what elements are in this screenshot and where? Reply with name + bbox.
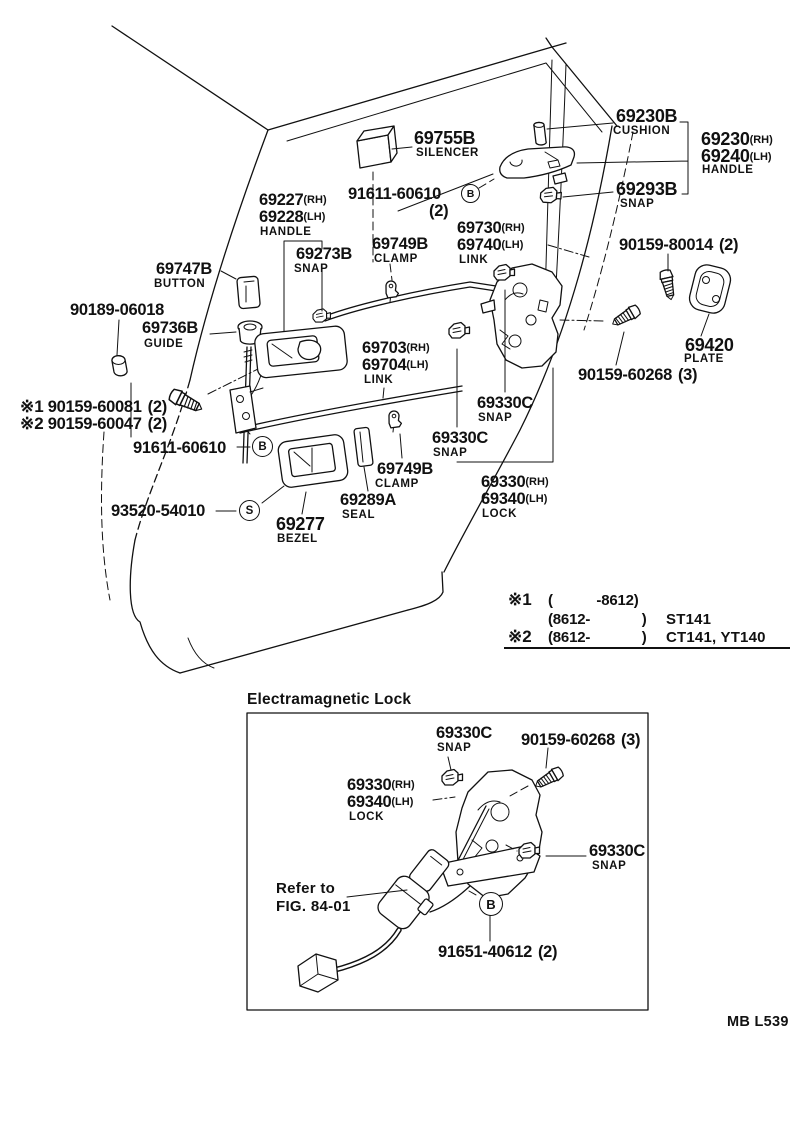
label-clamp-lower-num: 69749B	[377, 461, 433, 479]
label-inset-snap-top-num: 69330C	[436, 725, 492, 743]
label-snap-lower-name: SNAP	[433, 448, 467, 460]
label-outer-snap-num: 69293B	[616, 180, 677, 200]
label-inset-screw-91651: 91651-40612(2)	[438, 944, 557, 962]
parts-diagram-page: 69755B SILENCER 69230B CUSHION 69230(RH)…	[0, 0, 800, 1142]
label-inset-snap-right-name: SNAP	[592, 861, 626, 873]
label-button-name: BUTTON	[154, 279, 205, 291]
grommet-part	[112, 356, 127, 376]
label-snap-lower-num: 69330C	[432, 430, 488, 448]
latch-bracket-part	[230, 386, 263, 433]
applicability-row-1: ※1( -8612)	[504, 590, 792, 609]
label-link-outer-name: LINK	[459, 255, 488, 267]
label-inset-lock-name: LOCK	[349, 812, 384, 824]
label-inner-snap-name: SNAP	[294, 264, 328, 276]
inner-handle-part	[254, 325, 348, 378]
inset-title: Electramagnetic Lock	[247, 691, 411, 709]
label-inner-snap-num: 69273B	[296, 246, 352, 264]
actuator-part	[374, 843, 460, 935]
label-inset-snap-right-num: 69330C	[589, 843, 645, 861]
label-screw-91611-upper-num: 91611-60610	[348, 186, 441, 204]
plate-part	[687, 262, 733, 315]
label-inner-handle-lh: 69228(LH)	[259, 209, 325, 227]
bezel-part	[277, 434, 349, 489]
label-clamp-lower-name: CLAMP	[375, 479, 419, 491]
label-refer-line2: FIG. 84-01	[276, 898, 351, 915]
label-cushion-name: CUSHION	[613, 126, 670, 138]
label-clamp-upper-name: CLAMP	[374, 254, 418, 266]
label-screw-91611-upper-qty: (2)	[429, 203, 448, 221]
label-guide-name: GUIDE	[144, 339, 183, 351]
parts-artwork	[112, 122, 733, 488]
cushion-part	[534, 122, 546, 144]
label-refer-line1: Refer to	[276, 880, 335, 897]
inset-artwork	[247, 713, 648, 1010]
connector-part	[298, 954, 338, 992]
label-screw-60268-main: 90159-60268(3)	[578, 367, 697, 385]
label-screw-93520: 93520-54010	[111, 503, 205, 521]
label-seal-name: SEAL	[342, 510, 375, 522]
symbol-s: S	[239, 500, 260, 521]
diagram-line-art	[0, 0, 800, 1142]
label-snap-upper-name: SNAP	[478, 413, 512, 425]
symbol-b-mid: B	[252, 436, 273, 457]
label-bezel-name: BEZEL	[277, 534, 318, 546]
figure-code: MB L539	[727, 1014, 789, 1030]
silencer-part	[357, 126, 397, 168]
label-link-outer-lh: 69740(LH)	[457, 237, 523, 255]
label-outer-snap-name: SNAP	[620, 199, 654, 211]
applicability-underline	[504, 647, 790, 649]
symbol-b-upper: B	[461, 184, 480, 203]
label-cushion-num: 69230B	[616, 107, 677, 127]
lock-part	[481, 264, 562, 368]
label-silencer-num: 69755B	[414, 129, 475, 149]
label-seal-num: 69289A	[340, 492, 396, 510]
label-screw-80014: 90159-80014(2)	[619, 237, 738, 255]
label-screw-ref2: ※290159-60047(2)	[20, 414, 167, 434]
label-link-inner-lh: 69704(LH)	[362, 357, 428, 375]
label-plate-name: PLATE	[684, 354, 724, 366]
label-outer-handle-name: HANDLE	[702, 165, 754, 177]
label-guide-num: 69736B	[142, 320, 198, 338]
symbol-b-inset: B	[479, 892, 503, 916]
outer-handle-part	[500, 147, 575, 184]
label-lock-name: LOCK	[482, 509, 517, 521]
label-clamp-upper-num: 69749B	[372, 236, 428, 254]
label-bezel-num: 69277	[276, 515, 325, 535]
label-inset-snap-top-name: SNAP	[437, 743, 471, 755]
label-snap-upper-num: 69330C	[477, 395, 533, 413]
label-screw-91611-lower: 91611-60610	[133, 440, 226, 458]
label-inner-handle-name: HANDLE	[260, 227, 312, 239]
label-inset-lock-lh: 69340(LH)	[347, 794, 413, 812]
applicability-table: ※1( -8612) (8612- )ST141 ※2(8612- )CT141…	[504, 590, 792, 650]
label-link-inner-name: LINK	[364, 375, 393, 387]
seal-part	[354, 427, 374, 467]
applicability-row-2: (8612- )ST141	[504, 609, 792, 628]
label-lock-lh: 69340(LH)	[481, 491, 547, 509]
label-inset-screw-60268: 90159-60268(3)	[521, 732, 640, 750]
button-part	[237, 276, 261, 309]
label-grommet-num: 90189-06018	[70, 302, 164, 320]
label-silencer-name: SILENCER	[416, 148, 479, 160]
label-button-num: 69747B	[156, 261, 212, 279]
applicability-row-3: ※2(8612- )CT141, YT140	[504, 627, 792, 646]
